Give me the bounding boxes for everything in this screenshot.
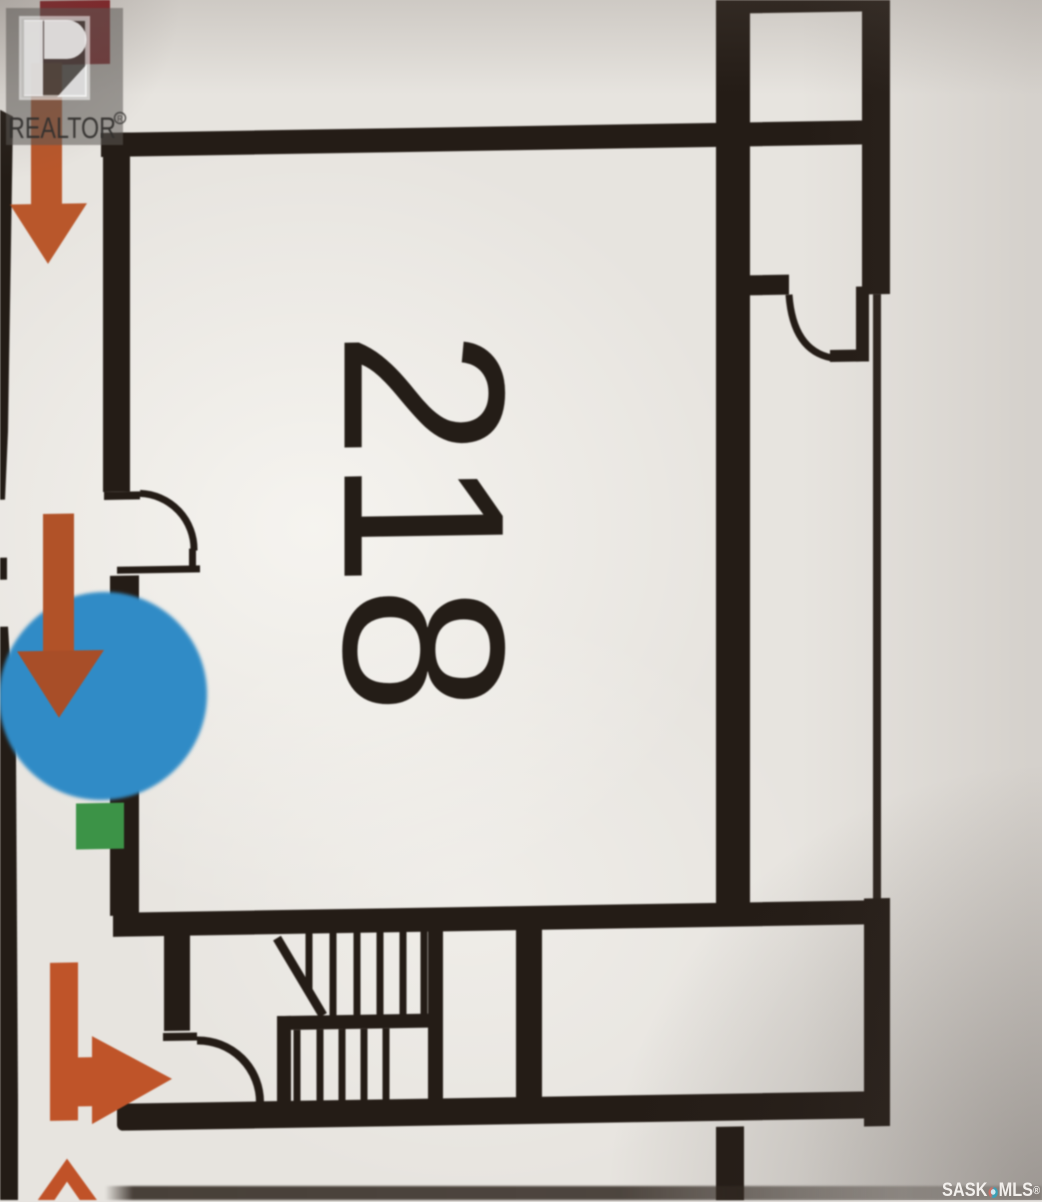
- svg-text:218: 218: [296, 328, 553, 716]
- svg-text:REALTOR: REALTOR: [8, 112, 116, 145]
- svg-text:R: R: [117, 115, 123, 124]
